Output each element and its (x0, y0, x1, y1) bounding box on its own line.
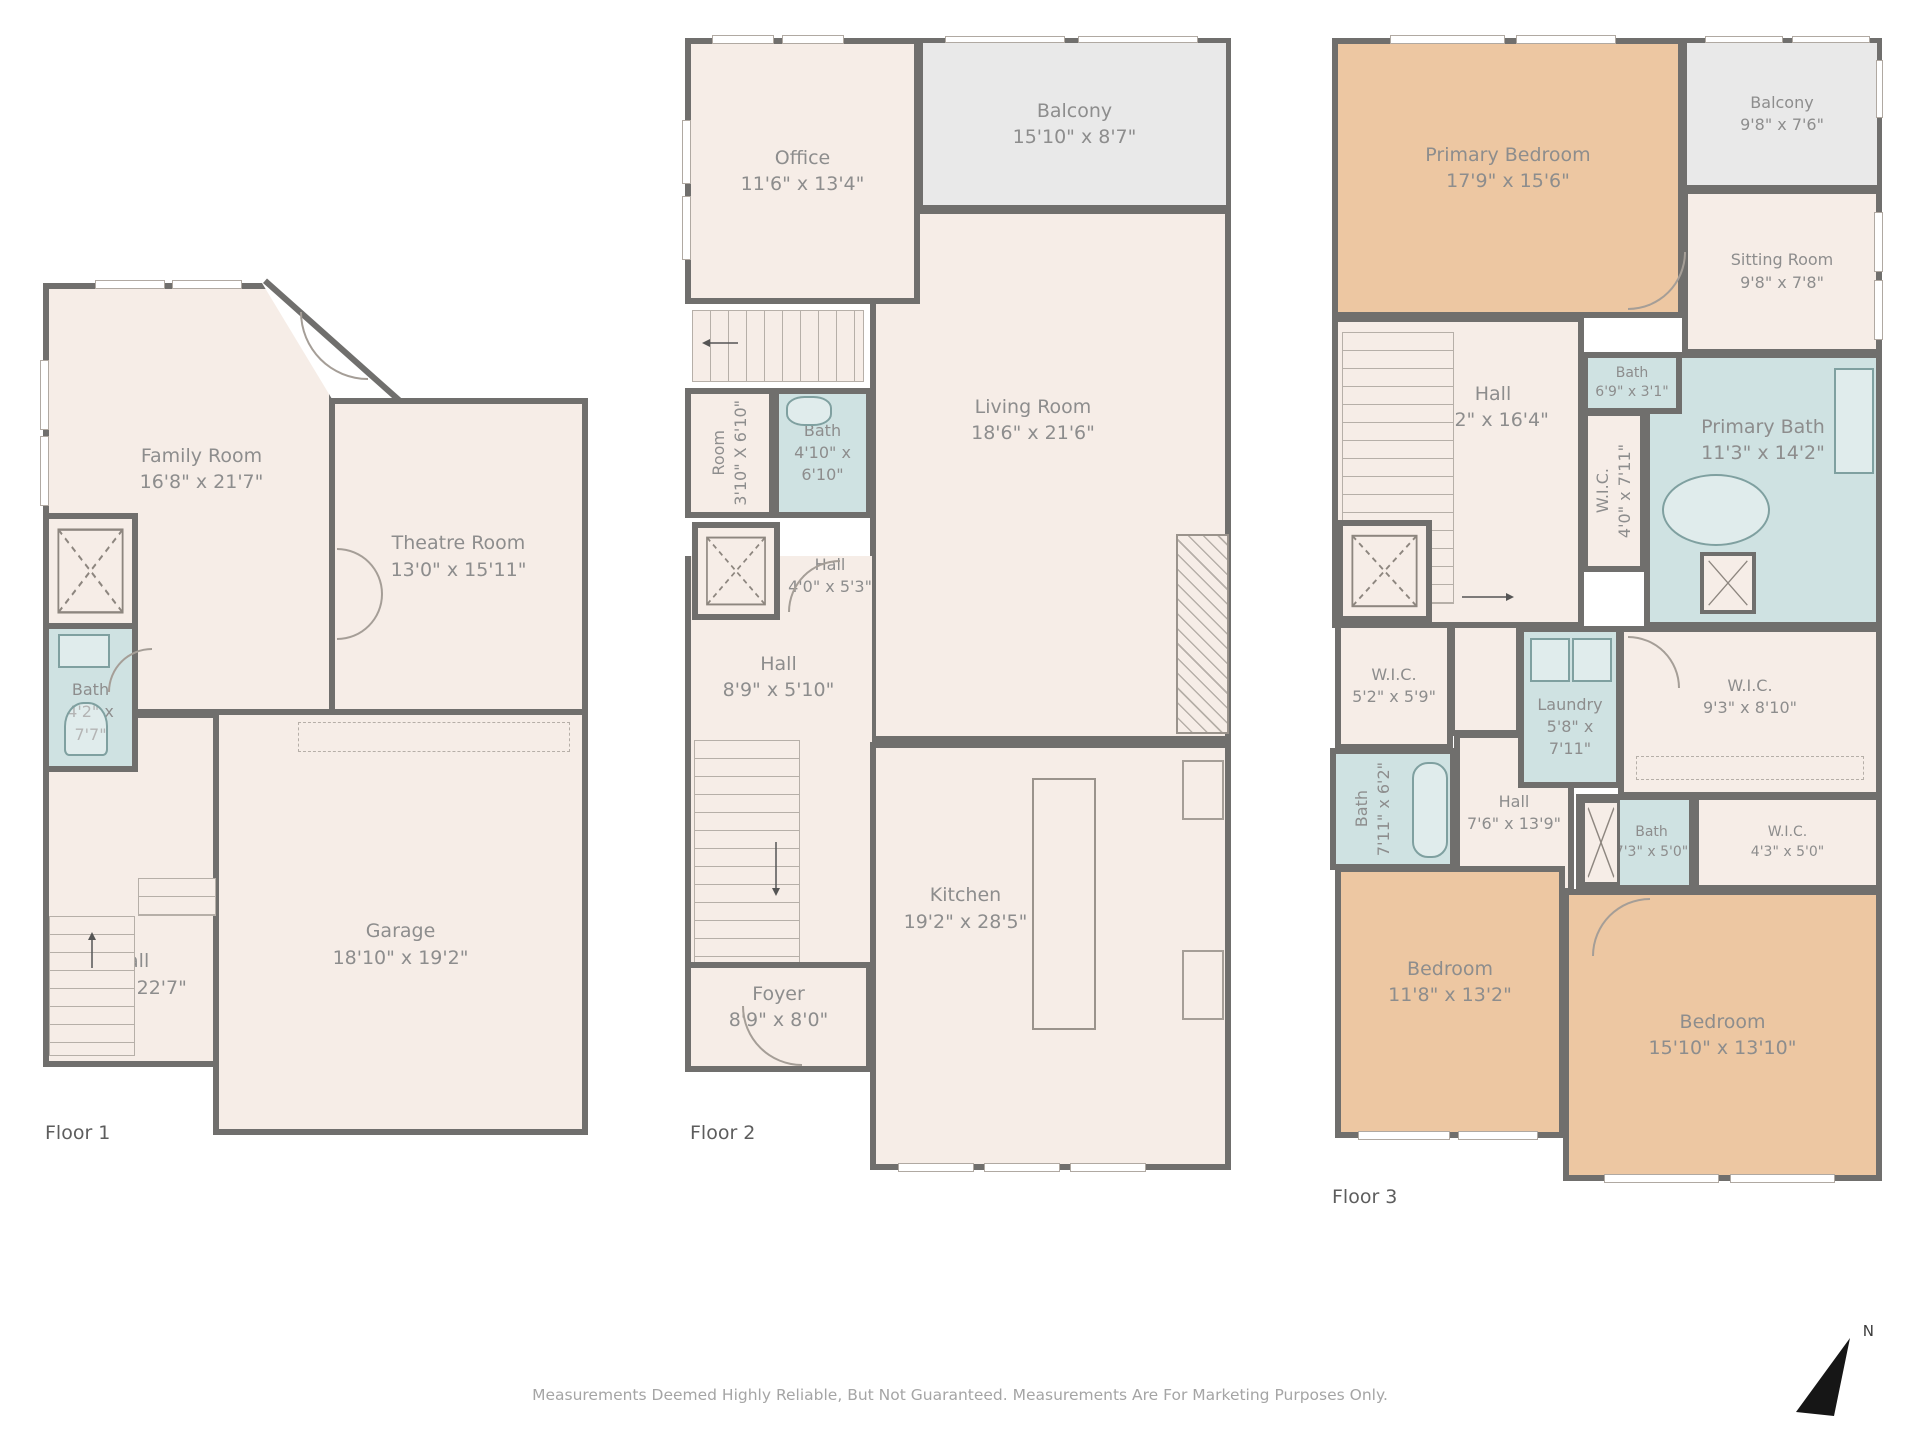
room-hall-floor2: Hall 8'9" x 5'10" (685, 630, 872, 724)
room-name-label: Balcony (1750, 92, 1813, 114)
window (1874, 280, 1883, 340)
room-dims-label: 11'3" x 14'2" (1701, 440, 1825, 466)
room-bedroom-a: Bedroom 11'8" x 13'2" (1335, 866, 1565, 1138)
window (95, 280, 165, 289)
room-dims-label: 3'10" X 6'10" (730, 400, 752, 506)
room-name-label: Hall (760, 651, 797, 677)
room-name-label: Bath (1635, 823, 1668, 842)
room-theatre-room: Theatre Room 13'0" x 15'11" (329, 398, 588, 715)
room-dims-label: 18'10" x 19'2" (333, 945, 469, 971)
room-dims-label: 7'11" x 6'2" (1373, 762, 1395, 856)
toilet-icon (786, 396, 832, 426)
stair-up-arrow-icon (86, 930, 98, 970)
room-room-floor2: Room 3'10" X 6'10" (685, 388, 775, 518)
floor-plan-canvas: Family Room 16'8" x 21'7" Theatre Room 1… (0, 0, 1920, 1440)
room-dims-label: 18'6" x 21'6" (971, 420, 1095, 446)
room-dims-label: 9'8" x 7'6" (1740, 114, 1824, 136)
window (984, 1163, 1060, 1172)
kitchen-island (1032, 778, 1096, 1030)
window (1070, 1163, 1146, 1172)
room-name-label: Balcony (1037, 98, 1112, 124)
window (172, 280, 242, 289)
window (1390, 35, 1505, 44)
room-name-label: Bedroom (1680, 1009, 1766, 1035)
room-name-label: Sitting Room (1731, 249, 1834, 271)
window (712, 35, 774, 44)
room-name-label: W.I.C. (1371, 664, 1416, 686)
room-sitting-room: Sitting Room 9'8" x 7'8" (1682, 188, 1882, 355)
window (1516, 35, 1616, 44)
room-name-label: W.I.C. (1768, 823, 1808, 842)
kitchen-appliance (1182, 950, 1224, 1020)
window (40, 436, 49, 506)
window (1458, 1131, 1538, 1140)
balcony-rail (1876, 60, 1883, 118)
room-dims-label: 9'8" x 7'8" (1740, 272, 1824, 294)
room-wic-vertical-floor3: W.I.C. 4'0" x 7'11" (1582, 410, 1646, 572)
room-dims-label: 15'10" x 8'7" (1013, 124, 1137, 150)
room-dims-label: 17'9" x 15'6" (1446, 168, 1570, 194)
pantry-hatch (1176, 534, 1229, 734)
x-pattern-icon (54, 524, 127, 618)
room-dims-label: 7'6" x 13'9" (1467, 813, 1561, 835)
room-name-label: Bath (1351, 790, 1373, 827)
room-name-label: Foyer (752, 981, 805, 1007)
window (1358, 1131, 1450, 1140)
room-dims-label: 8'9" x 5'10" (723, 677, 835, 703)
elevator-shaft-icon (1337, 520, 1432, 622)
elevator-shaft-icon (692, 522, 780, 620)
room-name-label: W.I.C. (1727, 675, 1772, 697)
room-name-label: Living Room (975, 394, 1092, 420)
vanity-icon (1834, 368, 1874, 474)
window (1730, 1174, 1835, 1183)
measurements-disclaimer: Measurements Deemed Highly Reliable, But… (0, 1386, 1920, 1404)
room-name-label: Office (775, 145, 830, 171)
toilet-icon (64, 702, 108, 756)
room-name-label: Hall (1499, 791, 1530, 813)
room-name-label: Family Room (141, 443, 262, 469)
room-vestibule (1449, 622, 1522, 736)
room-dims-label: 13'0" x 15'11" (391, 557, 527, 583)
stair-down-arrow-icon (770, 840, 782, 900)
x-pattern-icon (1707, 559, 1749, 607)
x-pattern-icon (1348, 531, 1421, 611)
room-office: Office 11'6" x 13'4" (685, 38, 920, 304)
x-pattern-icon (703, 533, 769, 609)
room-name-label: Bath (72, 679, 109, 701)
balcony-rail (1705, 36, 1783, 43)
room-dims-label: 16'8" x 21'7" (140, 469, 264, 495)
bathtub-icon (1662, 474, 1770, 546)
north-arrow-icon (1788, 1332, 1874, 1420)
kitchen-appliance (1182, 760, 1224, 820)
window (682, 196, 691, 260)
room-balcony-floor3: Balcony 9'8" x 7'6" (1682, 38, 1882, 190)
room-dims-label: 4'10" x 6'10" (779, 442, 866, 486)
room-garage: Garage 18'10" x 19'2" (213, 709, 588, 1135)
room-wic-d-floor3: W.I.C. 4'3" x 5'0" (1693, 794, 1882, 891)
balcony-rail (1792, 36, 1870, 43)
room-name-label: Kitchen (930, 882, 1001, 908)
room-name-label: Theatre Room (392, 530, 526, 556)
room-name-label: Room (708, 430, 730, 476)
shower-icon (1582, 800, 1620, 885)
room-dims-label: 4'0" x 7'11" (1614, 444, 1636, 538)
stairs-floor2-long (694, 740, 800, 964)
room-name-label: Primary Bath (1701, 414, 1825, 440)
bathtub-icon (1412, 762, 1448, 858)
dryer-icon (1572, 638, 1612, 682)
floor-2-label: Floor 2 (690, 1122, 755, 1144)
floor-1-label: Floor 1 (45, 1122, 110, 1144)
shower-icon (1700, 552, 1756, 614)
stair-arrow-icon (1460, 590, 1520, 604)
window (782, 35, 844, 44)
closet-rail (1636, 756, 1864, 780)
room-name-label: Hall (1475, 381, 1512, 407)
room-name-label: W.I.C. (1592, 468, 1614, 513)
room-dims-label: 15'10" x 13'10" (1649, 1035, 1797, 1061)
window (40, 360, 49, 430)
room-balcony-floor2: Balcony 15'10" x 8'7" (918, 38, 1231, 210)
room-name-label: Bath (1616, 364, 1649, 383)
room-name-label: Garage (366, 918, 436, 944)
window (1604, 1174, 1719, 1183)
room-name-label: Bedroom (1407, 956, 1493, 982)
floor-3-label: Floor 3 (1332, 1186, 1397, 1208)
washer-icon (1530, 638, 1570, 682)
x-pattern-icon (1587, 805, 1615, 880)
garage-door-track (298, 722, 570, 752)
room-dims-label: 9'3" x 8'10" (1703, 697, 1797, 719)
window (682, 120, 691, 184)
room-dims-label: 5'2" x 5'9" (1352, 686, 1436, 708)
room-dims-label: 6'9" x 3'1" (1595, 383, 1668, 402)
north-compass: N (1788, 1322, 1874, 1420)
window (898, 1163, 974, 1172)
exterior-wall (685, 556, 691, 976)
room-wic-b-floor3: W.I.C. 5'2" x 5'9" (1335, 622, 1453, 750)
room-dims-label: 5'8" x 7'11" (1524, 716, 1616, 760)
room-dims-label: 7'3" x 5'0" (1615, 843, 1688, 862)
balcony-rail (1078, 36, 1198, 43)
room-name-label: Primary Bedroom (1425, 142, 1590, 168)
room-bath-small-floor3: Bath 6'9" x 3'1" (1582, 352, 1682, 414)
window (1874, 212, 1883, 272)
room-dims-label: 11'6" x 13'4" (741, 171, 865, 197)
room-dims-label: 11'8" x 13'2" (1388, 982, 1512, 1008)
room-dims-label: 19'2" x 28'5" (904, 909, 1028, 935)
sink-icon (58, 634, 110, 668)
room-name-label: Laundry (1537, 694, 1602, 716)
stairs-floor1-lower (138, 878, 216, 916)
stair-down-arrow-icon (700, 336, 740, 350)
room-dims-label: 4'3" x 5'0" (1751, 843, 1824, 862)
elevator-shaft-icon (43, 513, 138, 629)
balcony-rail (945, 36, 1065, 43)
